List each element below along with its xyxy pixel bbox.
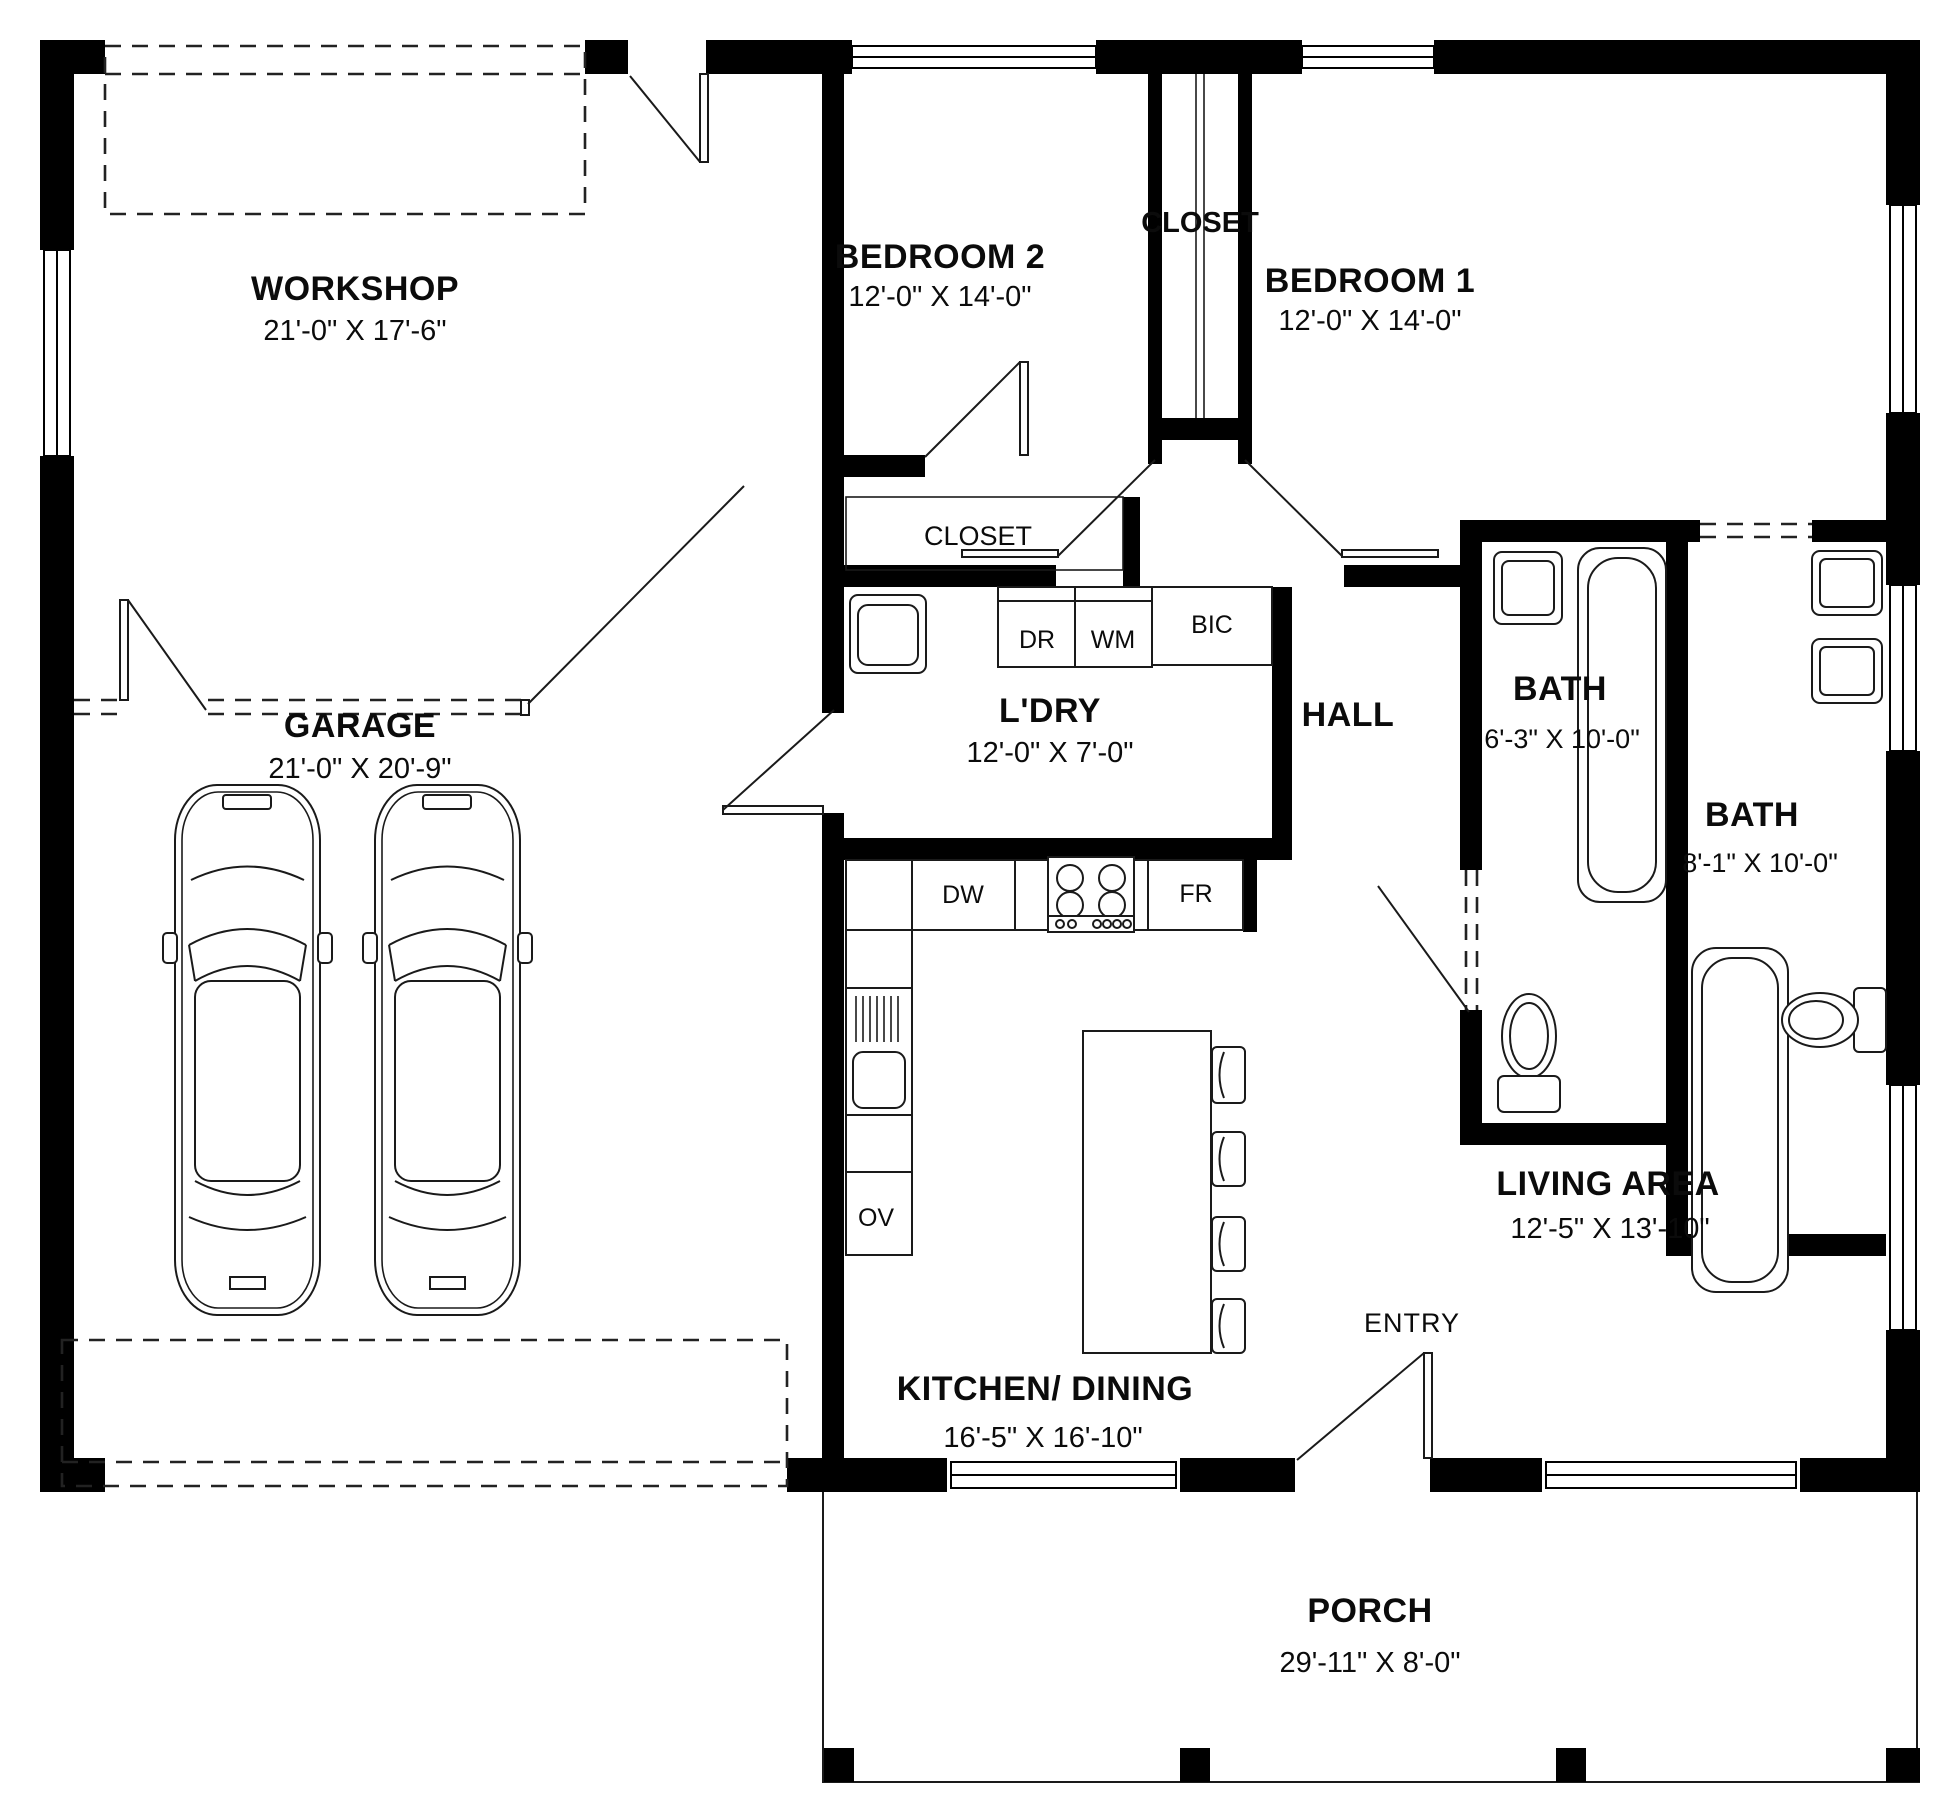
porch-outline (822, 1492, 1920, 1782)
entry-door (1297, 1353, 1432, 1460)
closet-laundry-label: CLOSET (924, 521, 1032, 551)
stool (1212, 1217, 1245, 1271)
bedroom2-label: BEDROOM 2 (835, 238, 1045, 276)
entry-label: ENTRY (1364, 1308, 1460, 1338)
bath2-dims: 8'-1" X 10'-0" (1682, 848, 1838, 878)
kitchen-label: KITCHEN/ DINING (897, 1370, 1194, 1408)
bath2-toilet (1782, 988, 1886, 1052)
garage-cars (163, 785, 532, 1315)
living-label: LIVING AREA (1496, 1165, 1719, 1203)
kitchen-window (951, 1462, 1176, 1488)
stool (1212, 1047, 1245, 1103)
dryer-label: DR (1019, 626, 1055, 654)
bath2-vanity-sink (1812, 551, 1882, 615)
bath1-label: BATH (1513, 670, 1607, 708)
bath1-toilet (1498, 994, 1560, 1112)
workshop-garage-door-right (521, 486, 744, 715)
bath2-fixtures (1692, 551, 1886, 1292)
kitchen-island (1083, 1031, 1245, 1353)
bedroom1-side-window (1890, 205, 1916, 413)
stove (1048, 857, 1134, 932)
bedroom2-dims: 12'-0" X 14'-0" (848, 281, 1031, 313)
bath1-dims: 6'-3" X 10'-0" (1484, 724, 1640, 754)
bedroom2-door (925, 362, 1028, 457)
bath1-sink (1494, 552, 1562, 624)
laundry-dims: 12'-0" X 7'-0" (966, 737, 1133, 769)
laundry-label: L'DRY (999, 692, 1101, 730)
porch-label: PORCH (1307, 1592, 1432, 1630)
closet-top-label: CLOSET (1141, 207, 1259, 239)
bedroom2-window (852, 46, 1096, 68)
living-side-window (1890, 1085, 1916, 1330)
workshop-exterior-door (630, 74, 708, 162)
workshop-garage-door-left (120, 600, 206, 710)
porch-dims: 29'-11" X 8'-0" (1279, 1647, 1460, 1679)
washer-label: WM (1091, 626, 1135, 654)
cupboard-label: BIC (1191, 611, 1233, 639)
hall-bath-door-leaf (1378, 886, 1469, 1012)
workshop-side-window (44, 250, 70, 456)
kitchen-dims: 16'-5" X 16'-10" (943, 1422, 1142, 1454)
bedroom1-label: BEDROOM 1 (1265, 262, 1475, 300)
bath1-fixtures (1494, 548, 1666, 1112)
bedroom1-top-window (1302, 46, 1434, 68)
oven-label: OV (858, 1204, 894, 1232)
living-bottom-window (1546, 1462, 1796, 1488)
car (163, 785, 332, 1315)
bath2-vanity-sink (1812, 639, 1882, 703)
stool (1212, 1299, 1245, 1353)
workshop-label: WORKSHOP (251, 270, 459, 308)
garage-dims: 21'-0" X 20'-9" (268, 753, 451, 785)
workshop-dims: 21'-0" X 17'-6" (263, 315, 446, 347)
garage-overhead-door (62, 1340, 787, 1486)
floor-plan-page: WORKSHOP 21'-0" X 17'-6" GARAGE 21'-0" X… (0, 0, 1946, 1819)
dishwasher-label: DW (942, 881, 984, 909)
floor-plan-svg: WORKSHOP 21'-0" X 17'-6" GARAGE 21'-0" X… (0, 0, 1946, 1819)
hall-label: HALL (1302, 696, 1395, 734)
garage-label: GARAGE (284, 707, 436, 745)
stool (1212, 1132, 1245, 1186)
hall-bedroom1-door (1245, 460, 1438, 557)
bath-window (1890, 585, 1916, 751)
fridge-label: FR (1179, 880, 1212, 908)
car (363, 785, 532, 1315)
living-dims: 12'-5" X 13'-10" (1510, 1213, 1709, 1245)
garage-kitchen-door (723, 710, 834, 814)
bedroom1-dims: 12'-0" X 14'-0" (1278, 305, 1461, 337)
bath2-label: BATH (1705, 796, 1799, 834)
laundry-sink (850, 595, 926, 673)
